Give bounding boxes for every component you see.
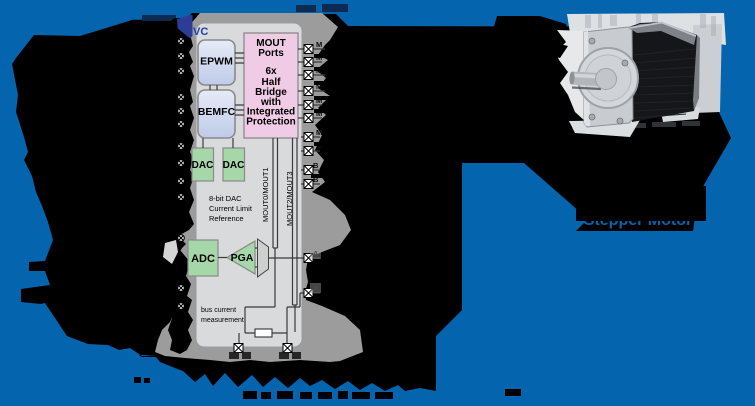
svg-text:bus current: bus current [201,307,236,314]
svg-text:MOUT0/MOUT1: MOUT0/MOUT1 [261,167,270,222]
svg-text:VC: VC [193,26,208,38]
svg-text:Reference: Reference [209,214,244,223]
svg-text:8-bit DAC: 8-bit DAC [209,194,242,203]
svg-text:Ports: Ports [258,48,284,59]
svg-text:EPWM: EPWM [200,56,233,68]
svg-text:B: B [313,161,319,170]
svg-text:M: M [316,40,322,49]
svg-text:M: M [316,128,322,137]
svg-text:Protection: Protection [246,117,295,128]
svg-text:6x: 6x [265,66,277,77]
svg-text:Current Limit: Current Limit [209,204,253,213]
svg-text:measurement: measurement [201,317,244,324]
svg-text:PGA: PGA [231,252,254,264]
svg-text:DAC: DAC [223,160,245,171]
svg-text:BEMFC: BEMFC [198,106,236,118]
svg-text:DAC: DAC [192,160,214,171]
svg-text:ADC: ADC [191,253,215,265]
